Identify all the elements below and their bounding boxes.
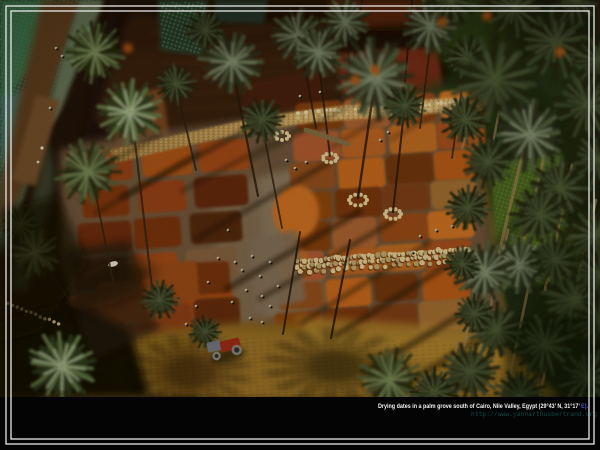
svg-text:Drying dates in a palm grove s: Drying dates in a palm grove south of Ca… [378, 404, 588, 410]
svg-text:http://www.yannarthusbertrand.: http://www.yannarthusbertrand.org [471, 411, 597, 418]
